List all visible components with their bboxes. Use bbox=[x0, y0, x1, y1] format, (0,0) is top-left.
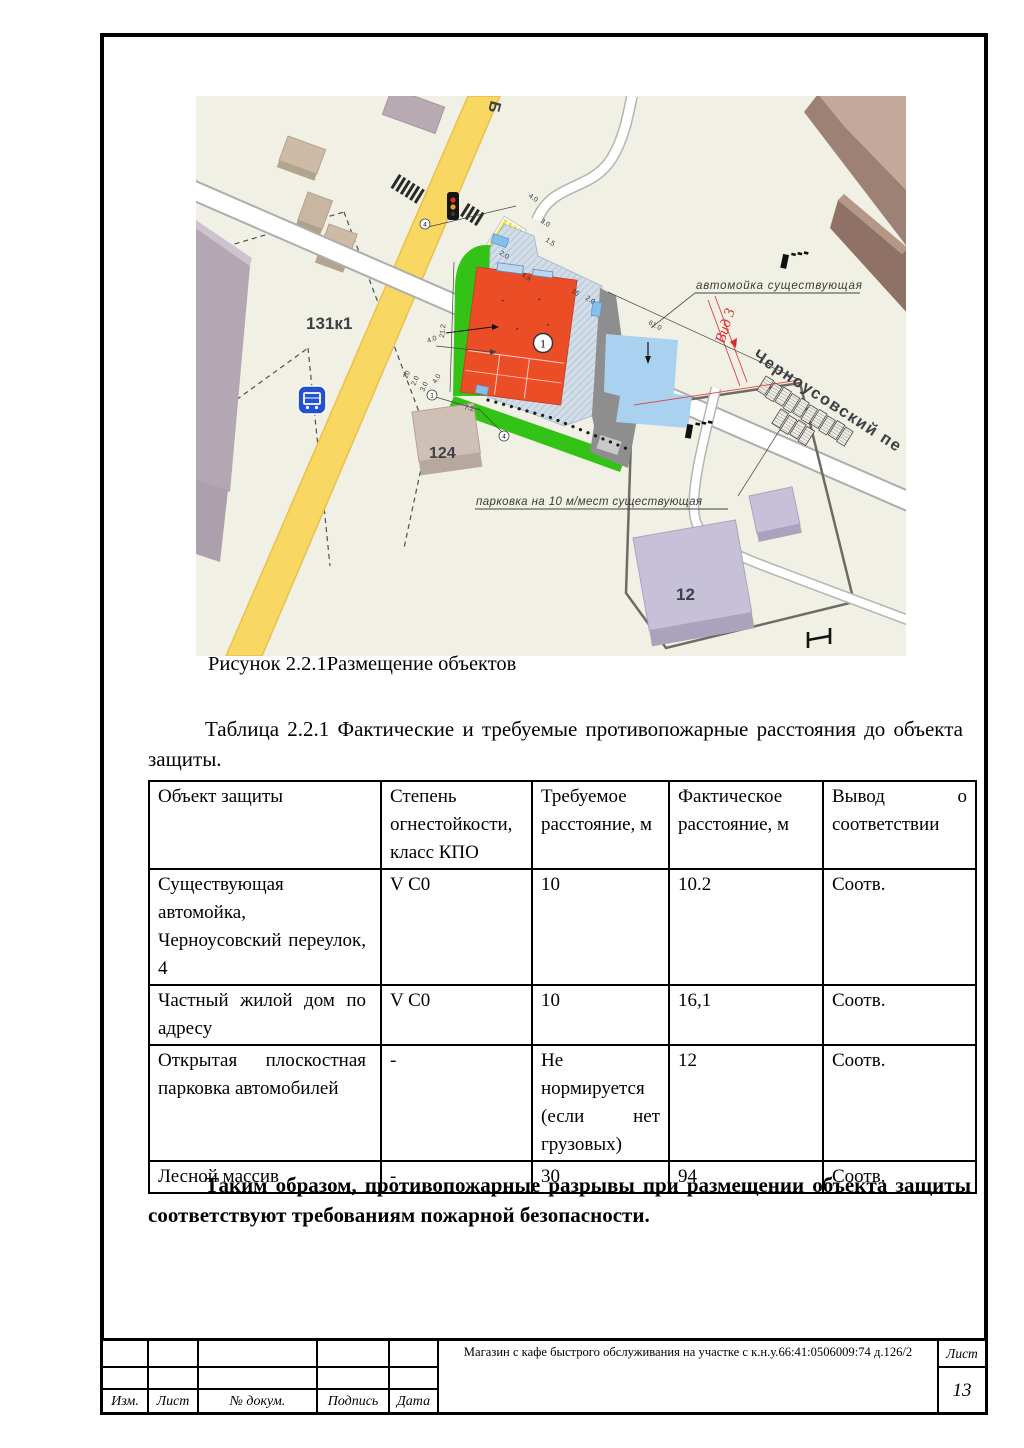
table-header-row: Объект защиты Степень огнестойкости, кла… bbox=[149, 781, 976, 869]
site-plan-map: Вид 3 131к1 124 12 Черноусовский пе Б ав… bbox=[196, 96, 906, 656]
carwash-label: автомойка существующая bbox=[696, 280, 863, 292]
col-docnum-label: № докум. bbox=[199, 1388, 318, 1414]
table-row: Существующая автомойка, Черноусовский пе… bbox=[149, 869, 976, 985]
col-date-label: Дата bbox=[390, 1388, 439, 1414]
sheet-number: 13 bbox=[939, 1368, 985, 1414]
title-block: Изм. Лист № докум. Подпись Дата Магазин … bbox=[100, 1338, 988, 1415]
table-row: Частный жилой дом по адресу V С0 10 16,1… bbox=[149, 985, 976, 1045]
traffic-light-icon bbox=[447, 192, 459, 220]
svg-text:1: 1 bbox=[430, 393, 434, 400]
conclusion-paragraph: Таким образом, противопожарные разрывы п… bbox=[148, 1170, 971, 1230]
header-conclusion: Вывод о соответствии bbox=[823, 781, 976, 869]
table-row: Открытая плоскостная парковка автомобиле… bbox=[149, 1045, 976, 1161]
title-block-cell bbox=[199, 1366, 318, 1388]
col-list-label: Лист bbox=[149, 1388, 199, 1414]
block-131k1-label: 131к1 bbox=[306, 314, 352, 333]
title-block-cell bbox=[318, 1341, 390, 1366]
document-title: Магазин с кафе быстрого обслуживания на … bbox=[439, 1341, 939, 1414]
house-124-label: 124 bbox=[429, 445, 456, 462]
svg-text:21.2: 21.2 bbox=[439, 324, 447, 338]
title-block-cell bbox=[318, 1366, 390, 1388]
header-required-distance: Требуемое расстояние, м bbox=[532, 781, 669, 869]
building-12 bbox=[633, 520, 755, 646]
col-signature-label: Подпись bbox=[318, 1388, 390, 1414]
site-plan-svg: Вид 3 131к1 124 12 Черноусовский пе Б ав… bbox=[196, 96, 906, 656]
svg-text:4: 4 bbox=[423, 222, 427, 229]
bus-stop-icon bbox=[298, 386, 326, 414]
svg-text:4: 4 bbox=[502, 434, 506, 441]
title-block-cell bbox=[149, 1341, 199, 1366]
title-block-cell bbox=[199, 1341, 318, 1366]
svg-text:1: 1 bbox=[540, 337, 546, 351]
fire-distance-table: Объект защиты Степень огнестойкости, кла… bbox=[148, 780, 977, 1194]
header-object: Объект защиты bbox=[149, 781, 381, 869]
title-block-cell bbox=[149, 1366, 199, 1388]
sheet-cell: Лист 13 bbox=[939, 1341, 985, 1414]
col-izm-label: Изм. bbox=[103, 1388, 149, 1414]
house-12-label: 12 bbox=[676, 585, 695, 604]
header-actual-distance: Фактическое расстояние, м bbox=[669, 781, 823, 869]
building-124 bbox=[412, 403, 482, 475]
sheet-label: Лист bbox=[939, 1341, 985, 1368]
title-block-cell bbox=[390, 1366, 439, 1388]
title-block-cell bbox=[390, 1341, 439, 1366]
parking-label: парковка на 10 м/мест существующая bbox=[476, 496, 702, 508]
building-marker-1: 1 bbox=[534, 334, 553, 353]
main-building bbox=[461, 260, 578, 405]
title-block-cell bbox=[103, 1366, 149, 1388]
table-intro-paragraph: Таблица 2.2.1 Фактические и требуемые пр… bbox=[148, 714, 963, 774]
figure-caption: Рисунок 2.2.1Размещение объектов bbox=[208, 653, 516, 676]
header-fire-resistance: Степень огнестойкости, класс КПО bbox=[381, 781, 532, 869]
title-block-cell bbox=[103, 1341, 149, 1366]
